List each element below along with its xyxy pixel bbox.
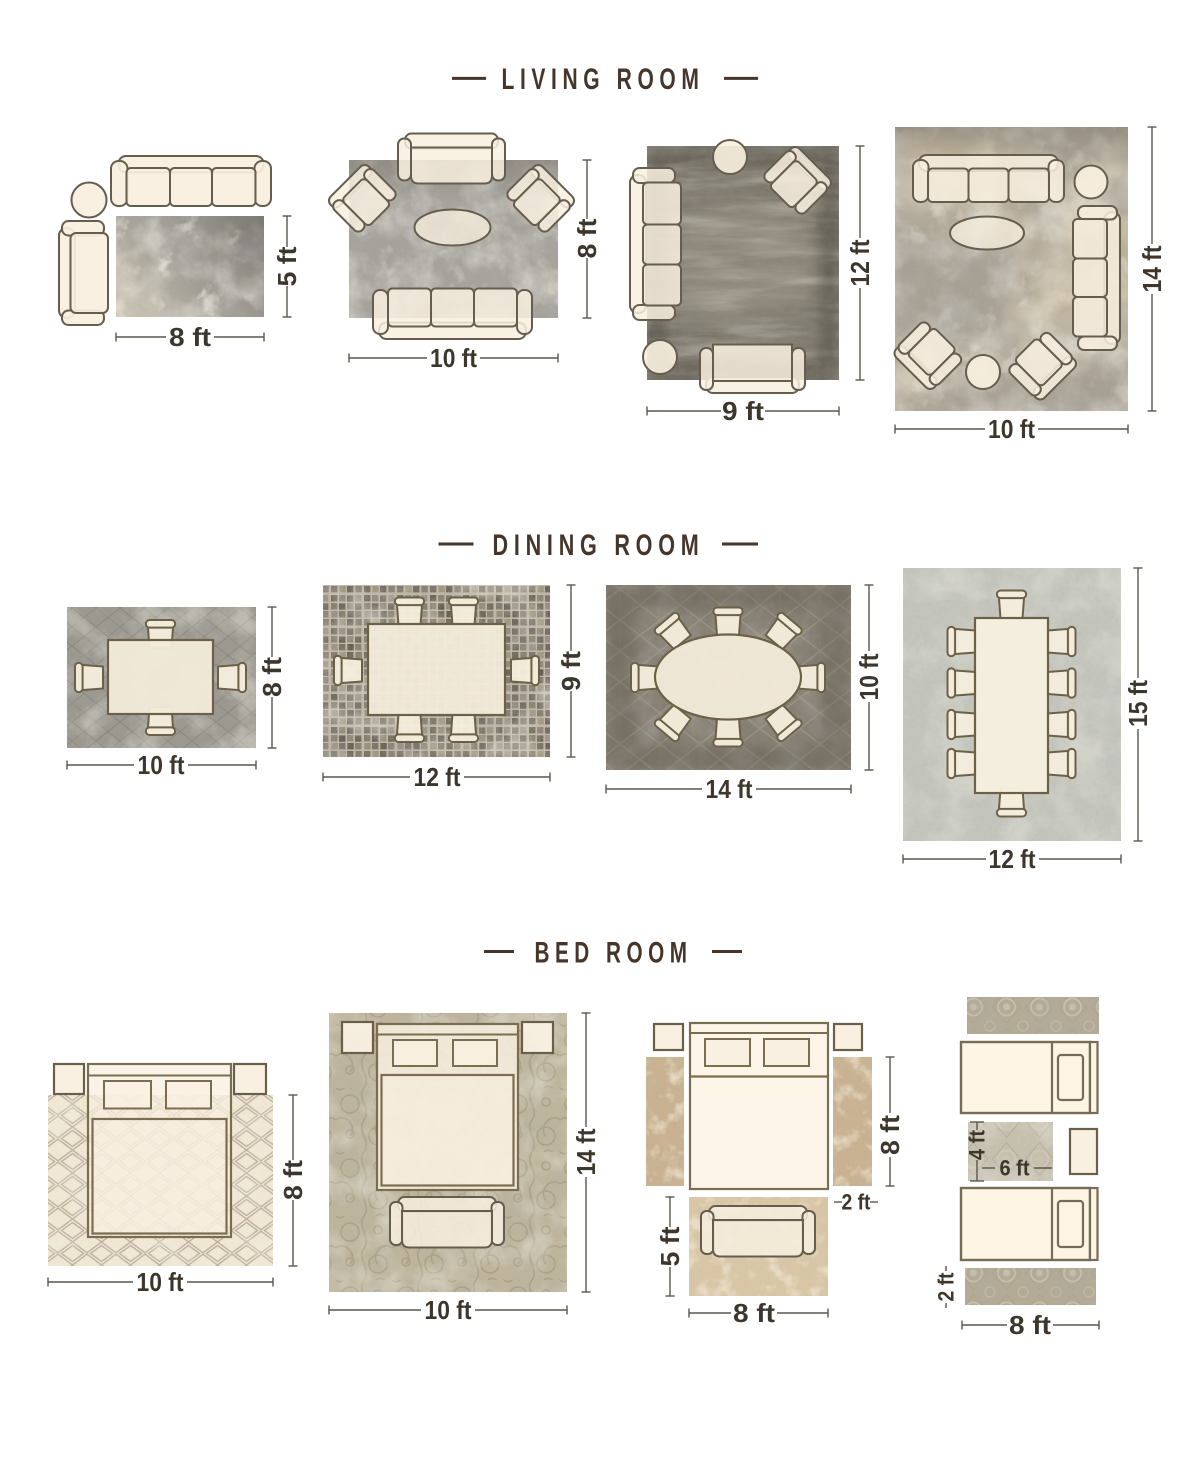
svg-text:12 ft: 12 ft: [989, 844, 1036, 874]
svg-text:10 ft: 10 ft: [425, 1295, 472, 1325]
svg-text:2 ft: 2 ft: [842, 1190, 872, 1215]
svg-text:10 ft: 10 ft: [137, 1267, 184, 1297]
svg-text:LIVING ROOM: LIVING ROOM: [502, 63, 705, 96]
svg-text:12 ft: 12 ft: [414, 762, 461, 792]
svg-text:10 ft: 10 ft: [138, 750, 185, 780]
svg-text:8 ft: 8 ft: [1009, 1310, 1051, 1340]
svg-text:2 ft: 2 ft: [934, 1272, 959, 1302]
svg-text:5 ft: 5 ft: [272, 246, 302, 286]
svg-text:6 ft: 6 ft: [1000, 1156, 1031, 1181]
svg-text:8 ft: 8 ft: [169, 322, 211, 352]
svg-text:8 ft: 8 ft: [875, 1115, 905, 1155]
svg-text:8 ft: 8 ft: [733, 1298, 775, 1328]
svg-text:8 ft: 8 ft: [257, 657, 287, 697]
svg-text:8 ft: 8 ft: [278, 1160, 308, 1200]
svg-text:14 ft: 14 ft: [1137, 245, 1167, 292]
svg-text:14 ft: 14 ft: [706, 774, 753, 804]
svg-text:14 ft: 14 ft: [571, 1128, 601, 1175]
svg-text:9 ft: 9 ft: [722, 396, 764, 426]
svg-text:10 ft: 10 ft: [430, 343, 477, 373]
svg-text:5 ft: 5 ft: [655, 1226, 685, 1266]
svg-text:10 ft: 10 ft: [854, 653, 884, 700]
svg-text:BED ROOM: BED ROOM: [535, 936, 693, 969]
svg-text:DINING ROOM: DINING ROOM: [493, 529, 705, 562]
svg-text:8 ft: 8 ft: [572, 218, 602, 258]
svg-text:12 ft: 12 ft: [845, 239, 875, 286]
svg-text:15 ft: 15 ft: [1123, 680, 1153, 727]
svg-text:10 ft: 10 ft: [988, 414, 1035, 444]
svg-text:9 ft: 9 ft: [556, 651, 586, 691]
svg-text:4 ft: 4 ft: [965, 1129, 990, 1160]
